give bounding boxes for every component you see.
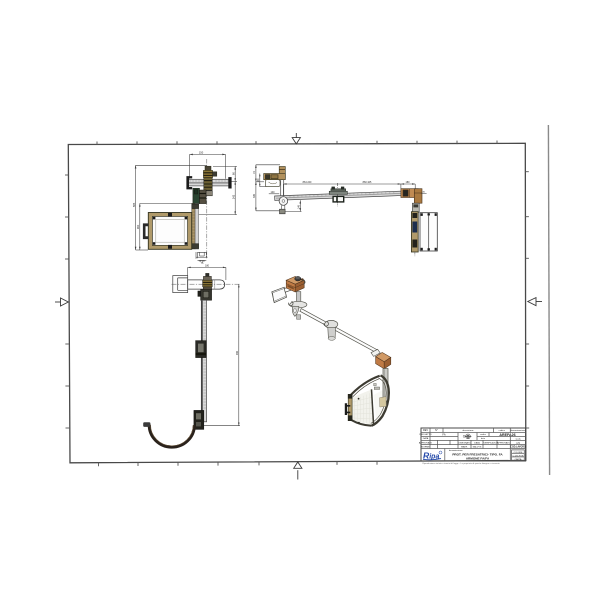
svg-text:N°: N° — [435, 429, 438, 432]
svg-text:FA: FA — [442, 432, 445, 436]
svg-text:scala: scala — [515, 438, 521, 440]
svg-text:CARTA: CARTA — [515, 458, 522, 461]
svg-text:REV: REV — [423, 429, 428, 432]
svg-text:146: 146 — [297, 204, 300, 209]
svg-text:1:5: 1:5 — [516, 441, 520, 445]
svg-text:860 425: 860 425 — [363, 181, 372, 184]
svg-text:descrizione: descrizione — [462, 429, 474, 432]
svg-text:ARMONE FA/FA: ARMONE FA/FA — [466, 456, 490, 460]
svg-text:DATA: DATA — [474, 442, 480, 445]
svg-text:APPROVATO: APPROVATO — [419, 441, 433, 444]
svg-text:APPROVATO: APPROVATO — [497, 442, 511, 445]
svg-text:DISEGNATO: DISEGNATO — [458, 442, 471, 445]
svg-text:DATA: DATA — [423, 437, 429, 440]
svg-text:180: 180 — [406, 181, 411, 184]
svg-text:864 240: 864 240 — [303, 181, 312, 184]
svg-text:Riproduzione vietata a termini: Riproduzione vietata a termini di legge … — [423, 462, 501, 465]
svg-text:360: 360 — [136, 224, 140, 229]
svg-text:COD.LAVORO: COD.LAVORO — [510, 446, 526, 449]
svg-text:PROGETTO: PROGETTO — [419, 434, 432, 436]
svg-text:NORME: NORME — [421, 446, 430, 448]
svg-text:C.DIG.FOR: C.DIG.FOR — [513, 455, 524, 457]
svg-text:MATR.: MATR. — [461, 446, 468, 449]
svg-text:codice: codice — [480, 434, 487, 436]
svg-text:305: 305 — [253, 193, 256, 198]
svg-text:585: 585 — [132, 202, 136, 207]
svg-text:150: 150 — [199, 151, 204, 155]
svg-text:242: 242 — [231, 194, 235, 199]
svg-text:180: 180 — [205, 265, 210, 268]
svg-text:VERIFICATO: VERIFICATO — [484, 442, 497, 445]
svg-text:denominazione: denominazione — [449, 450, 463, 452]
svg-text:AREFA26: AREFA26 — [499, 433, 515, 437]
svg-text:900: 900 — [236, 350, 239, 355]
svg-text:140: 140 — [271, 191, 276, 194]
svg-text:SALDYS: SALDYS — [473, 446, 482, 449]
svg-text:COLORE: COLORE — [514, 452, 523, 454]
